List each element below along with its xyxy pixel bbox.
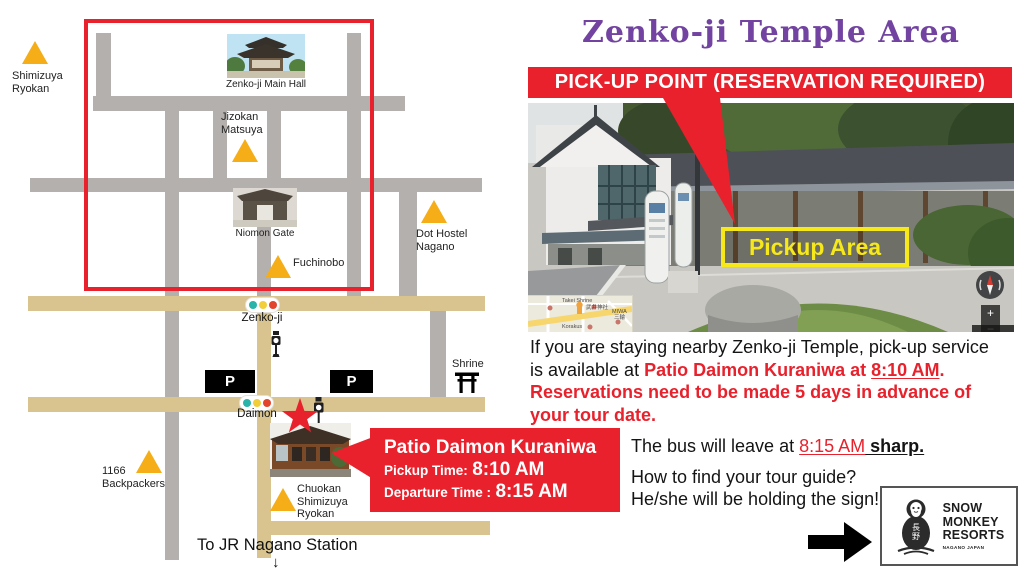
street-view-minimap[interactable]: Takei Shrine 武井神社 MIWA 三輪 Korakus bbox=[528, 295, 633, 332]
marker-triangle-chuokan bbox=[270, 488, 296, 511]
svg-text:野: 野 bbox=[912, 532, 920, 541]
to-station-label: To JR Nagano Station bbox=[197, 536, 358, 555]
info-line-4: your tour date. bbox=[530, 404, 1024, 427]
label-1166-backpackers: 1166 Backpackers bbox=[102, 465, 174, 490]
callout-pointer bbox=[331, 434, 373, 482]
label-shimizuya-ryokan: Shimizuya Ryokan bbox=[12, 70, 82, 95]
torii-icon bbox=[455, 371, 479, 393]
pickup-point-banner: PICK-UP POINT (RESERVATION REQUIRED) bbox=[528, 67, 1012, 98]
pickup-time-value: 8:10 AM bbox=[472, 459, 544, 480]
label-shrine: Shrine bbox=[452, 358, 484, 371]
page-title: Zenko-ji Temple Area bbox=[528, 15, 1014, 50]
road bbox=[430, 310, 446, 402]
signal-dot-red bbox=[263, 399, 271, 407]
snow-monkey-resorts-sign: 長 野 SNOW MONKEY RESORTS NAGANO JAPAN bbox=[880, 486, 1018, 566]
label-chuokan: Chuokan Shimizuya Ryokan bbox=[297, 483, 361, 521]
signal-dot-teal bbox=[243, 399, 251, 407]
parking-sign: P bbox=[330, 370, 373, 393]
tour-guide-text: How to find your tour guide? He/she will… bbox=[631, 467, 879, 510]
pickup-time-label: Pickup Time: bbox=[384, 463, 468, 478]
bus-stop-icon bbox=[269, 331, 283, 358]
caption-main-hall: Zenko-ji Main Hall bbox=[204, 79, 328, 90]
signal-zenkoji bbox=[246, 298, 279, 312]
street-view-photo: Pickup Area Takei Shrine 武井神社 MIWA 三輪 bbox=[528, 103, 1014, 332]
snow-monkey-logo-icon: 長 野 bbox=[894, 497, 938, 555]
road bbox=[399, 186, 417, 298]
pickup-area-highlight: Pickup Area bbox=[721, 227, 909, 267]
logo-text-resorts: RESORTS bbox=[943, 529, 1005, 543]
down-arrow-icon: ↓ bbox=[272, 554, 280, 571]
signal-dot-yellow bbox=[259, 301, 267, 309]
label-daimon-stop: Daimon bbox=[232, 408, 282, 420]
pickup-info-text: If you are staying nearby Zenko-ji Templ… bbox=[530, 336, 1024, 426]
minimap-label-takei-jp: 武井神社 bbox=[586, 305, 608, 311]
label-fuchinobo: Fuchinobo bbox=[293, 257, 344, 270]
logo-text-monkey: MONKEY bbox=[943, 516, 1005, 530]
logo-text-nagano-japan: NAGANO JAPAN bbox=[943, 545, 1005, 550]
zoom-in-button[interactable]: + bbox=[981, 305, 1000, 321]
marker-triangle-jizokan bbox=[232, 139, 258, 162]
main-hall-photo bbox=[227, 34, 305, 78]
info-line-1: If you are staying nearby Zenko-ji Templ… bbox=[530, 336, 1024, 359]
marker-triangle-fuchinobo bbox=[265, 255, 291, 278]
departure-time-value: 8:15 AM bbox=[495, 481, 567, 502]
caption-niomon-gate: Niomon Gate bbox=[206, 228, 324, 239]
info-line-2: is available at Patio Daimon Kuraniwa at… bbox=[530, 359, 1024, 382]
label-zenkoji-stop: Zenko-ji bbox=[230, 312, 294, 324]
marker-triangle-shimizuya bbox=[22, 41, 48, 64]
departure-time-label: Departure Time : bbox=[384, 485, 491, 500]
banner-pointer bbox=[658, 98, 740, 226]
compass-control[interactable] bbox=[976, 271, 1004, 299]
minimap-label-takei: Takei Shrine bbox=[562, 298, 592, 304]
svg-text:長: 長 bbox=[912, 523, 920, 532]
parking-sign: P bbox=[205, 370, 255, 393]
pickup-callout: Patio Daimon Kuraniwa Pickup Time: 8:10 … bbox=[370, 428, 620, 512]
signal-dot-teal bbox=[249, 301, 257, 309]
signal-dot-red bbox=[269, 301, 277, 309]
minimap-label-miwa-jp: 三輪 bbox=[614, 315, 625, 321]
guide-answer: He/she will be holding the sign! bbox=[631, 489, 879, 511]
marker-triangle-dot-hostel bbox=[421, 200, 447, 223]
minimap-label-korakus: Korakus bbox=[562, 324, 582, 330]
street-view-bar bbox=[972, 325, 1014, 332]
arrow-right-icon bbox=[808, 520, 872, 564]
logo-text-snow: SNOW bbox=[943, 502, 1005, 516]
label-jizokan-matsuya: Jizokan Matsuya bbox=[221, 111, 279, 136]
callout-title: Patio Daimon Kuraniwa bbox=[384, 436, 620, 459]
guide-question: How to find your tour guide? bbox=[631, 467, 879, 489]
label-dot-hostel: Dot Hostel Nagano bbox=[416, 228, 480, 253]
info-line-3: Reservations need to be made 5 days in a… bbox=[530, 381, 1024, 404]
bus-departure-text: The bus will leave at 8:15 AM sharp. bbox=[631, 436, 924, 457]
pickup-flyer: Shimizuya Ryokan Jizokan Matsuya Fuchino… bbox=[0, 0, 1024, 576]
niomon-gate-photo bbox=[233, 188, 297, 227]
pickup-star-icon bbox=[280, 397, 320, 437]
signal-dot-yellow bbox=[253, 399, 261, 407]
main-road bbox=[264, 521, 490, 535]
